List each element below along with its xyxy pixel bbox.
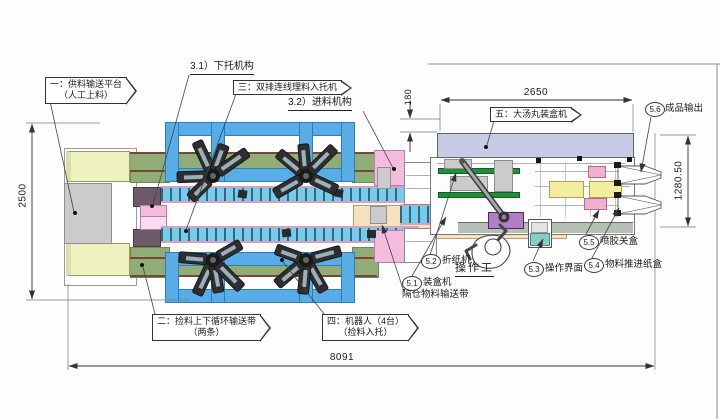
callout-tray-loader-text: 三：双排连线理料入托机 <box>238 82 337 93</box>
callout-circulation-line2: （两条） <box>157 327 256 338</box>
label-5-6: 成品输出 <box>665 103 703 114</box>
output-chutes <box>614 162 661 216</box>
callout-feed-platform-line1: 一：供料输送平台 <box>50 79 122 90</box>
callout-robots-line2: （捡料入托） <box>327 327 404 338</box>
label-5-3: 操作界面 <box>545 263 583 274</box>
robot-3 <box>179 239 246 297</box>
label-lower-tray-mech: 3.1）下托机构 <box>190 61 254 75</box>
callout-tray-loader: 三：双排连线理料入托机 <box>233 80 342 95</box>
badge-5-2: 5.2 <box>421 254 441 269</box>
callout-feed-platform: 一：供料输送平台 （人工上料） <box>45 77 127 104</box>
robot-2 <box>272 144 339 199</box>
callout-circulation-conveyor: 二：捡料上下循环输送带 （两条） <box>152 314 261 341</box>
dim-overall-length: 8091 <box>320 352 364 363</box>
callout-circulation-line1: 二：捡料上下循环输送带 <box>157 316 256 327</box>
belt-items <box>237 188 376 238</box>
dim-cartoner-length: 2650 <box>514 87 558 98</box>
label-5-2: 折纸机 <box>442 255 471 266</box>
label-5-1: 装盒机 <box>423 277 452 288</box>
dim-offset-180: 180 <box>403 82 413 112</box>
label-feed-mech: 3.2）进料机构 <box>288 97 352 111</box>
cartoner-arm <box>459 158 510 223</box>
badge-5-6: 5.6 <box>645 102 665 117</box>
badge-5-3: 5.3 <box>524 262 544 277</box>
dim-overall-width: 2500 <box>18 176 29 216</box>
callout-cartoner-text: 五：大汤丸装盒机 <box>495 109 567 120</box>
badge-5-4: 5.4 <box>584 258 604 273</box>
badge-5-5: 5.5 <box>579 235 599 250</box>
output-chute-lower <box>618 196 661 214</box>
callout-feed-platform-line2: （人工上料） <box>50 90 122 101</box>
callout-cartoner: 五：大汤丸装盒机 <box>490 107 572 122</box>
callout-robots-line1: 四：机器人（4台） <box>327 316 404 327</box>
output-chute-upper <box>618 166 661 184</box>
dim-cartoner-width: 1280.50 <box>674 155 685 207</box>
callout-robots: 四：机器人（4台） （捡料入托） <box>322 314 409 341</box>
robots <box>177 139 342 297</box>
label-5-4: 物料推进纸盒 <box>605 259 662 270</box>
badge-5-1: 5.1 <box>402 276 422 291</box>
label-5-5: 喷胶关盒 <box>600 236 638 247</box>
robot-4 <box>273 244 342 294</box>
cad-layout-drawing: 2500 8091 2650 1280.50 180 一：供料输送平台 （人工上… <box>0 0 720 419</box>
